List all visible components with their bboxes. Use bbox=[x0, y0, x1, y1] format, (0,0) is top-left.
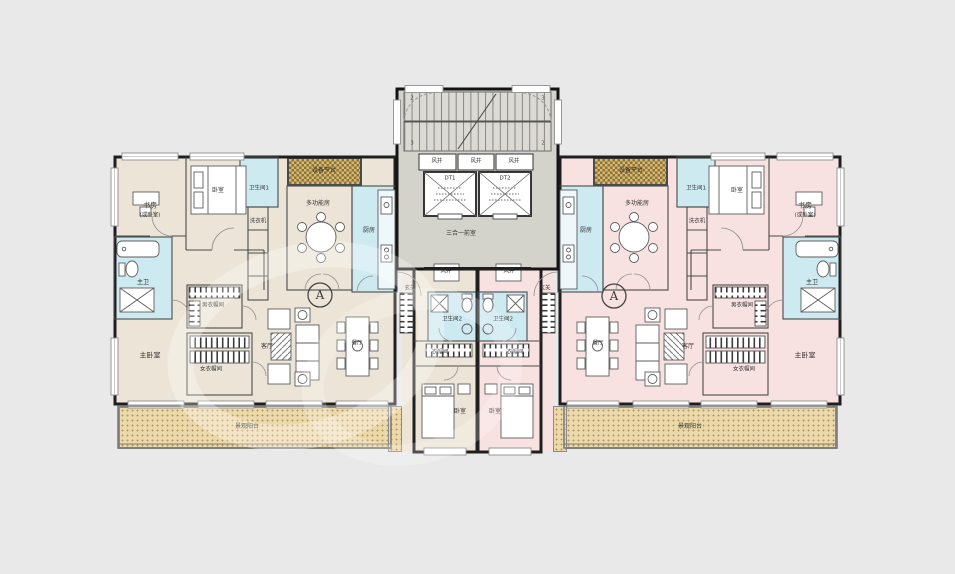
core-label-elevator-1: DT1 bbox=[444, 176, 455, 182]
room-label-closet-left: 衣帽间 bbox=[432, 350, 449, 356]
room-label-bathroom1-left: 卫生间1 bbox=[249, 186, 269, 192]
unit-marker-right: A bbox=[610, 290, 619, 302]
core-label-airshaft-3: 风井 bbox=[508, 159, 519, 165]
stair-mark-4: 2 bbox=[541, 141, 545, 147]
room-label-living-left: 客厅 bbox=[261, 344, 273, 350]
room-label-dining-right: 餐厅 bbox=[592, 341, 603, 347]
room-label-washer-left: 洗衣机 bbox=[250, 219, 267, 225]
room-label-bedroom2-left: 卧室 bbox=[212, 188, 224, 194]
room-label-study-note-right: (或卧室) bbox=[795, 213, 816, 219]
stair-mark-2: 3 bbox=[541, 96, 545, 102]
stair-mark-3: 3 bbox=[410, 141, 414, 147]
room-label-study-left: 书房 bbox=[143, 203, 157, 210]
room-label-masterbath-left: 主卫 bbox=[137, 280, 149, 286]
room-label-master-bedroom-left: 主卧室 bbox=[140, 353, 161, 360]
room-label-foyer-left: 玄关 bbox=[404, 286, 415, 292]
label-layer: 书房 (或卧室) 卧室 卫生间1 设备平台 多功能房 厨房 洗衣机 主卫 男衣帽… bbox=[0, 0, 955, 574]
room-label-foyer-right: 玄关 bbox=[539, 286, 550, 292]
room-label-masterbath-right: 主卫 bbox=[806, 280, 818, 286]
room-label-kitchen-left: 厨房 bbox=[363, 228, 375, 234]
room-label-closet-right: 衣帽间 bbox=[507, 350, 524, 356]
core-label-lobby: 三合一前室 bbox=[446, 231, 476, 237]
room-label-study-note-left: (或卧室) bbox=[140, 213, 161, 219]
room-label-dining-left: 餐厅 bbox=[351, 341, 362, 347]
room-label-living-right: 客厅 bbox=[682, 344, 694, 350]
room-label-airshaft-right: 风井 bbox=[503, 269, 514, 275]
room-label-mens-closet-left: 男衣帽间 bbox=[202, 303, 224, 309]
room-label-multiroom-left: 多功能房 bbox=[306, 201, 330, 207]
room-label-multiroom-right: 多功能房 bbox=[625, 201, 649, 207]
room-label-kitchen-right: 厨房 bbox=[580, 228, 592, 234]
core-label-airshaft-2: 风井 bbox=[470, 159, 481, 165]
room-label-balcony-right: 景观阳台 bbox=[678, 424, 702, 430]
core-label-elevator-2: DT2 bbox=[499, 176, 510, 182]
room-label-platform-right: 设备平台 bbox=[619, 168, 643, 174]
room-label-bathroom1-right: 卫生间1 bbox=[686, 186, 706, 192]
core-label-airshaft-1: 风井 bbox=[431, 159, 442, 165]
room-label-platform-left: 设备平台 bbox=[312, 168, 336, 174]
room-label-womens-closet-left: 女衣帽间 bbox=[200, 367, 222, 373]
room-label-study-right: 书房 bbox=[798, 203, 812, 210]
room-label-master-bedroom-right: 主卧室 bbox=[795, 353, 816, 360]
room-label-airshaft-left: 风井 bbox=[440, 269, 451, 275]
room-label-bathroom2-right: 卫生间2 bbox=[493, 317, 513, 323]
room-label-bedroom3-left: 卧室 bbox=[454, 409, 466, 415]
room-label-balcony-left: 景观阳台 bbox=[235, 424, 259, 430]
room-label-bedroom3-right: 卧室 bbox=[489, 409, 501, 415]
room-label-bathroom2-left: 卫生间2 bbox=[442, 317, 462, 323]
room-label-washer-right: 洗衣机 bbox=[689, 219, 706, 225]
room-label-womens-closet-right: 女衣帽间 bbox=[733, 367, 755, 373]
room-label-bedroom2-right: 卧室 bbox=[731, 188, 743, 194]
floor-plan-canvas: 书房 (或卧室) 卧室 卫生间1 设备平台 多功能房 厨房 洗衣机 主卫 男衣帽… bbox=[0, 0, 955, 574]
stair-mark-1: 2 bbox=[410, 96, 414, 102]
room-label-mens-closet-right: 男衣帽间 bbox=[731, 303, 753, 309]
unit-marker-left: A bbox=[316, 289, 325, 301]
